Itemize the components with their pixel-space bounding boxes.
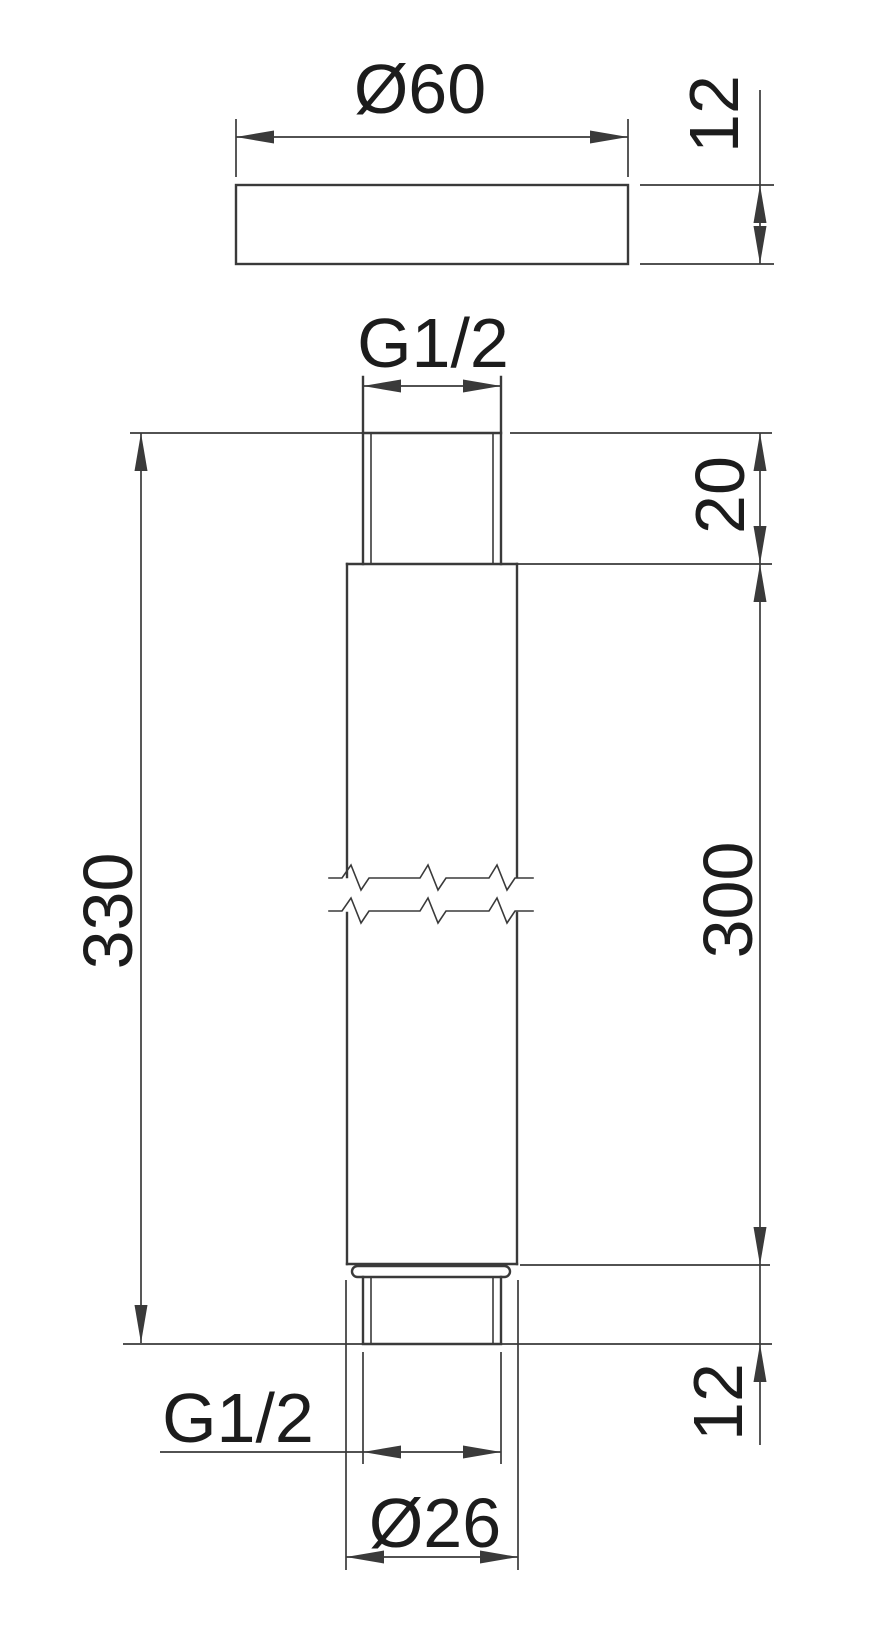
dimension-drawing: Ø60 12 G1/2 20 330 300 12 G1/2 Ø26 [0,0,870,1650]
label-top-thread-length: 20 [681,456,759,534]
break-line-upper [329,865,533,890]
label-total-length: 330 [69,853,147,970]
label-disc-diameter: Ø60 [354,50,486,128]
arrow-disc12-down [754,226,767,264]
technical-drawing-canvas: Ø60 12 G1/2 20 330 300 12 G1/2 Ø26 [0,0,870,1650]
dimension-labels: Ø60 12 G1/2 20 330 300 12 G1/2 Ø26 [69,50,767,1562]
arrow-330-up [135,433,148,471]
arrow-d60-left [236,131,274,144]
label-bottom-diameter: Ø26 [369,1484,501,1562]
arrow-disc12-up [754,185,767,223]
arrow-d60-right [590,131,628,144]
arrow-g12bottom-left [363,1446,401,1459]
label-bottom-thread-length: 12 [679,1363,757,1441]
label-top-thread: G1/2 [357,304,509,382]
collar-ring [352,1266,510,1277]
label-bottom-thread: G1/2 [162,1379,314,1457]
label-disc-thickness: 12 [675,75,753,153]
arrow-300-up [754,564,767,602]
arrow-330-down [135,1305,148,1343]
arrow-g12bottom-right [463,1446,501,1459]
label-body-length: 300 [689,842,767,959]
arrow-300-down [754,1227,767,1265]
break-line-lower [329,898,533,923]
disc-outline [236,185,628,264]
